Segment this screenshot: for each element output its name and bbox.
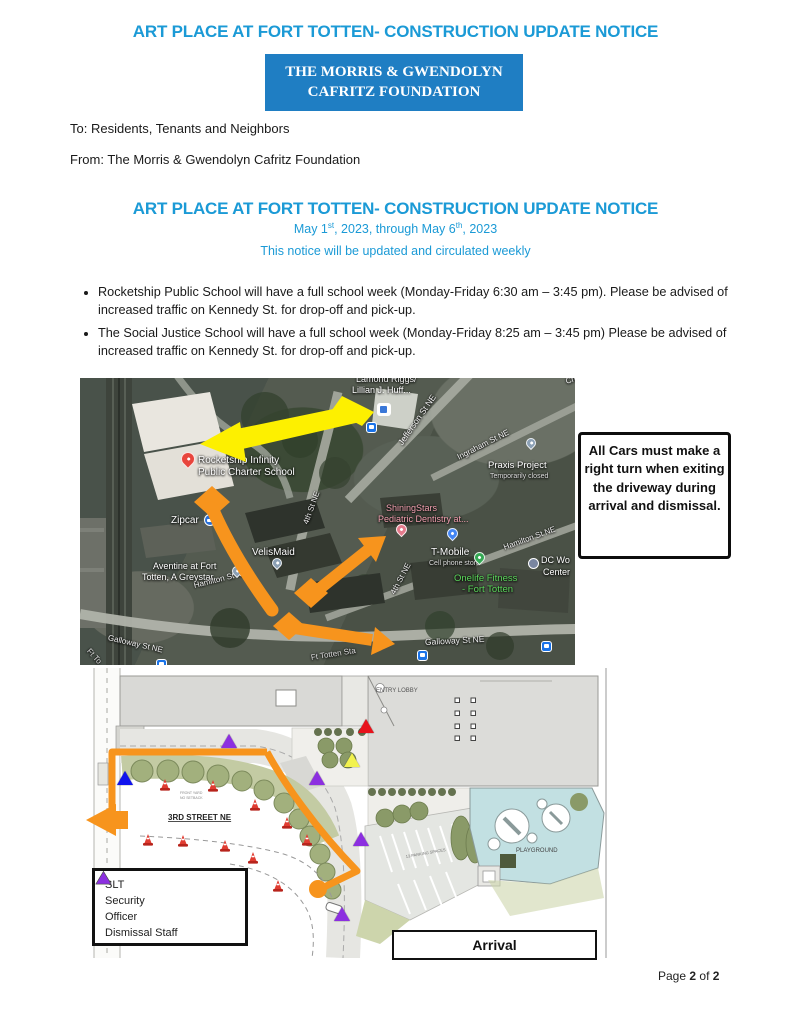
legend-label: Dismissal Staff: [105, 927, 178, 939]
page-title: ART PLACE AT FORT TOTTEN- CONSTRUCTION U…: [0, 22, 791, 42]
notice-subtitle: This notice will be updated and circulat…: [0, 244, 791, 258]
staff-marker: [353, 832, 369, 846]
from-line: From: The Morris & Gwendolyn Cafritz Fou…: [70, 152, 360, 167]
staff-marker: [309, 771, 325, 785]
notice-bullets: Rocketship Public School will have a ful…: [76, 283, 748, 365]
legend-item: Officer: [105, 909, 245, 925]
bullet-rocketship: Rocketship Public School will have a ful…: [98, 283, 748, 320]
right-turn-notice: All Cars must make a right turn when exi…: [578, 432, 731, 559]
legend-item: Security: [105, 893, 245, 909]
staff-marker: [334, 907, 350, 921]
front-yard-label2: NO SETBACK: [180, 796, 203, 800]
site-plan: ENTRY LOBBY 3RD STREET NE PLAYGROUND 13 …: [80, 668, 610, 958]
legend-item: Dismissal Staff: [105, 925, 245, 941]
arrival-label: Arrival: [392, 930, 597, 960]
orange-route: [194, 486, 395, 655]
legend-label: Security: [105, 895, 145, 907]
foundation-name-line2: CAFRITZ FOUNDATION: [265, 83, 523, 103]
staff-marker: [358, 719, 374, 733]
document-page: ART PLACE AT FORT TOTTEN- CONSTRUCTION U…: [0, 0, 791, 1023]
playground-label: PLAYGROUND: [516, 848, 558, 854]
foundation-logo-banner: THE MORRIS & GWENDOLYN CAFRITZ FOUNDATIO…: [265, 54, 523, 111]
to-line: To: Residents, Tenants and Neighbors: [70, 121, 289, 136]
route-arrows: [80, 378, 575, 665]
entry-lobby-label: ENTRY LOBBY: [376, 688, 418, 694]
yellow-arrow: [200, 396, 374, 462]
map-legend: SLTSecurityOfficerDismissal Staff: [92, 868, 248, 946]
staff-marker: [221, 734, 237, 748]
staff-marker: [344, 753, 360, 767]
front-yard-label1: FRONT YARD: [180, 791, 203, 795]
bullet-social-justice: The Social Justice School will have a fu…: [98, 324, 748, 361]
satellite-map: Lamond Riggs/Lillian J. Huff...Jefferson…: [80, 378, 575, 665]
foundation-name-line1: THE MORRIS & GWENDOLYN: [265, 63, 523, 83]
page-number: Page 2 of 2: [658, 969, 719, 983]
date-range: May 1st, 2023, through May 6th, 2023: [0, 221, 791, 236]
legend-item: SLT: [105, 877, 245, 893]
staff-marker: [117, 771, 133, 785]
street-label: 3RD STREET NE: [168, 813, 232, 822]
notice-title: ART PLACE AT FORT TOTTEN- CONSTRUCTION U…: [0, 199, 791, 219]
legend-triangle-icon: [95, 871, 112, 885]
legend-label: Officer: [105, 911, 137, 923]
